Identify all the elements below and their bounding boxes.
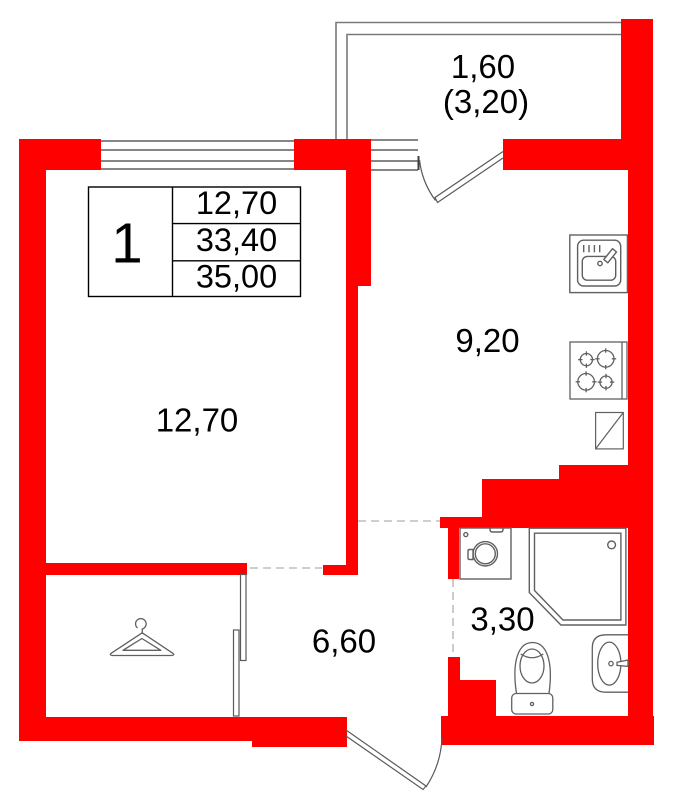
svg-text:3,30: 3,30	[470, 601, 534, 638]
svg-text:1,60: 1,60	[451, 48, 515, 85]
svg-text:1: 1	[111, 211, 142, 274]
svg-text:(3,20): (3,20)	[443, 83, 529, 120]
svg-text:9,20: 9,20	[455, 322, 519, 359]
svg-text:6,60: 6,60	[312, 623, 376, 660]
svg-text:35,00: 35,00	[196, 258, 277, 294]
svg-text:12,70: 12,70	[196, 185, 277, 221]
svg-text:12,70: 12,70	[156, 402, 239, 439]
svg-text:33,40: 33,40	[196, 222, 277, 258]
